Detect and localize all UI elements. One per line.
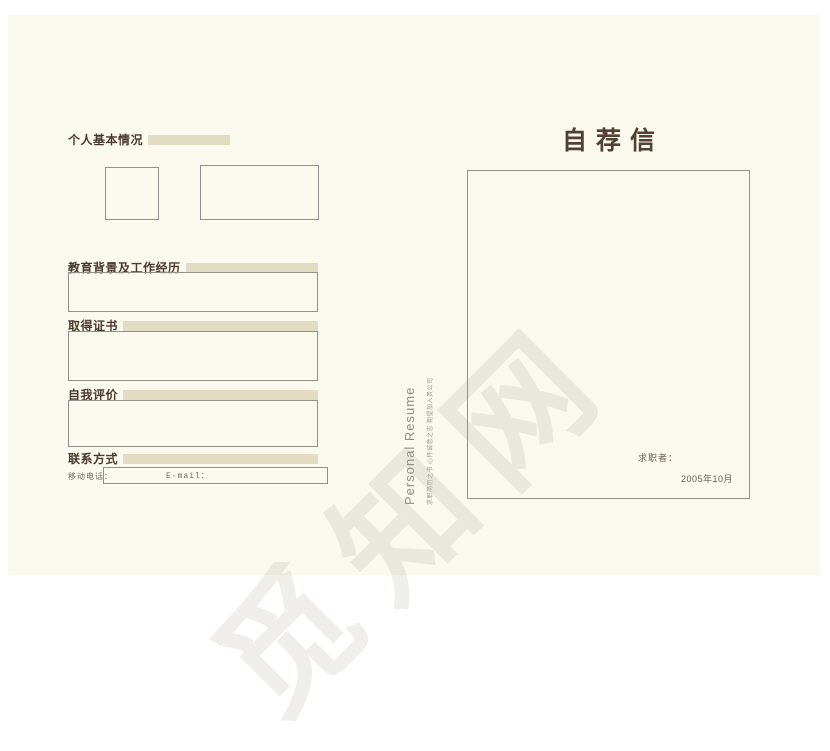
spine-subtitle-vertical: 求职简历之书 心怀诚意之志 期望加入贵公司 (425, 377, 434, 505)
contact-field[interactable]: E-mail： (103, 467, 328, 484)
letter-date: 2005年10月 (681, 472, 733, 485)
certificates-box[interactable] (68, 331, 318, 381)
cover-letter-body-box[interactable]: 求职者： 2005年10月 (467, 170, 750, 499)
basic-info-box[interactable] (200, 165, 319, 220)
section-basic-info: 个人基本情况 (68, 131, 318, 148)
resume-template-page: 觅知网 个人基本情况 教育背景及工作经历 取得证书 自我评价 联系方式 移动电话… (8, 15, 820, 575)
self-evaluation-box[interactable] (68, 400, 318, 447)
section-title-basic-info: 个人基本情况 (68, 131, 143, 148)
section-contact: 联系方式 (68, 450, 318, 467)
email-label: E-mail： (166, 470, 210, 481)
accent-bar (123, 390, 318, 400)
accent-bar (123, 321, 318, 331)
cover-letter-title: 自荐信 (467, 121, 750, 157)
spine-title-vertical: Personal Resume (402, 387, 417, 505)
education-box[interactable] (68, 272, 318, 312)
accent-bar (148, 135, 230, 145)
section-title-contact: 联系方式 (68, 450, 118, 467)
accent-bar (123, 454, 318, 464)
applicant-label: 求职者： (638, 451, 678, 464)
accent-bar (186, 263, 318, 273)
photo-box[interactable] (105, 167, 159, 220)
